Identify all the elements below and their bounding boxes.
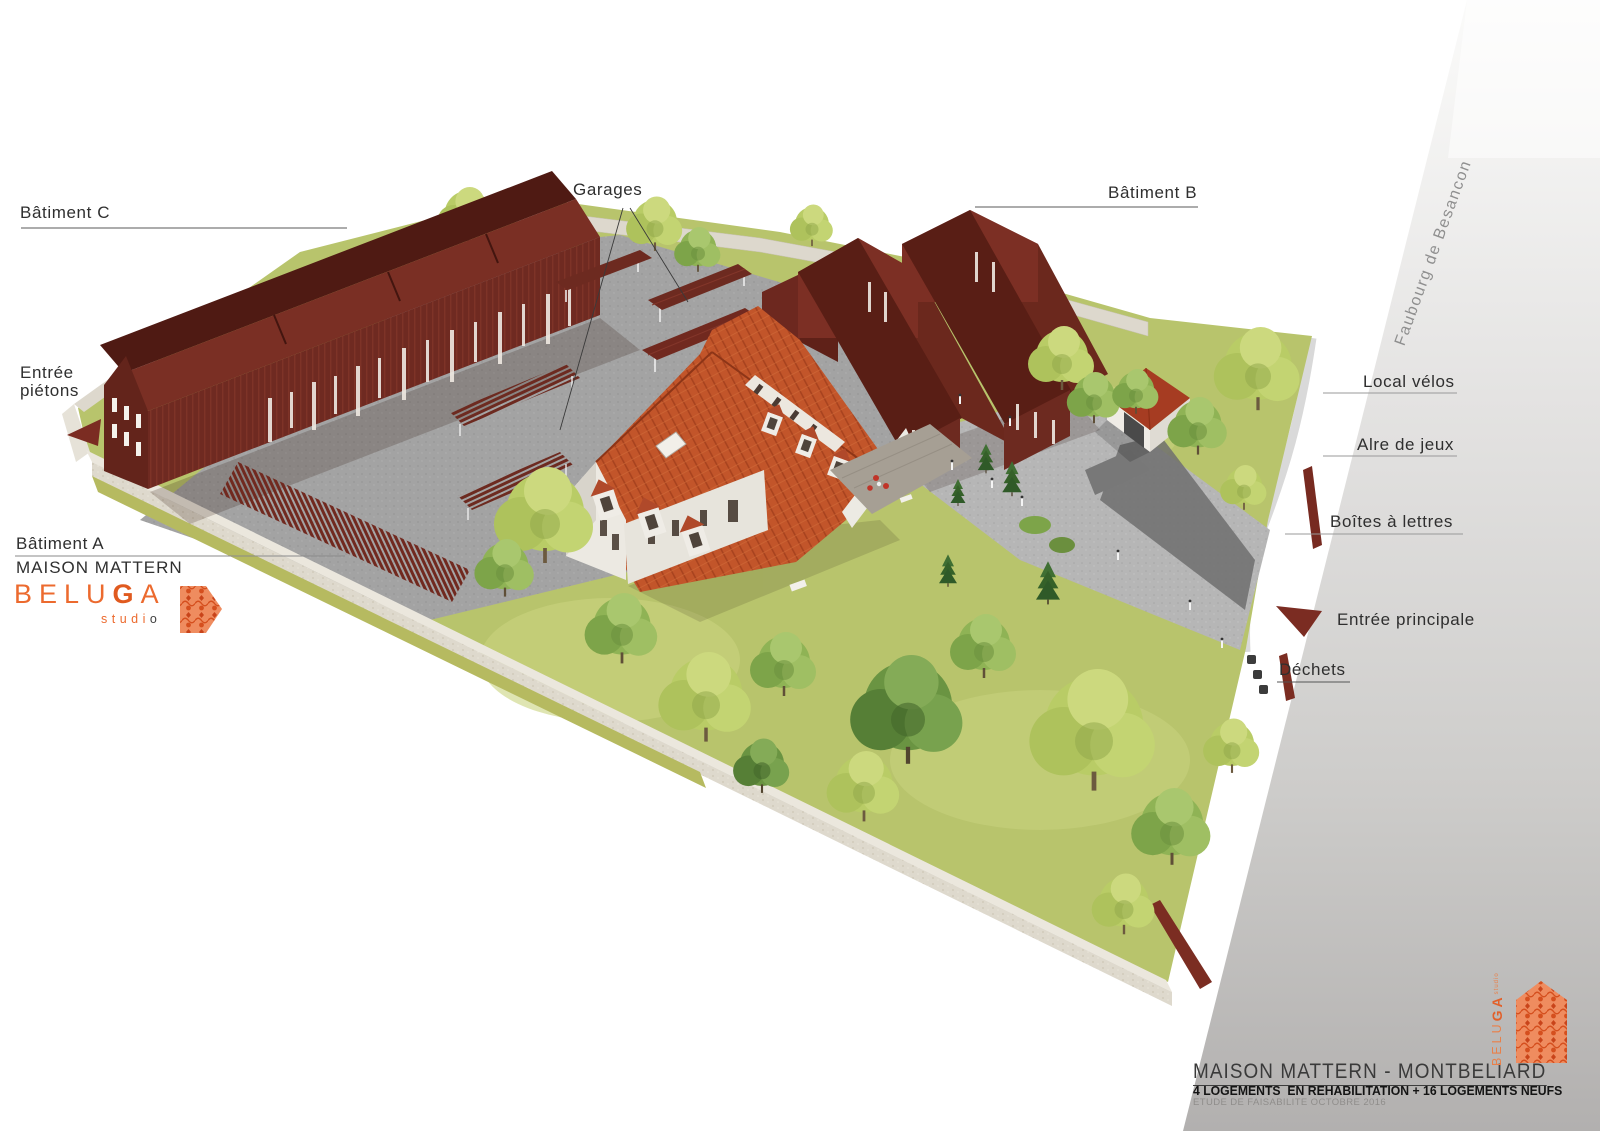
label-batiment-b: Bâtiment B — [1108, 183, 1197, 203]
label-maison-mattern: MAISON MATTERN — [16, 558, 183, 578]
presentation-sheet: Bâtiment C Garages Bâtiment B Entrée pié… — [0, 0, 1600, 1131]
label-aire-de-jeux: Alre de jeux — [1357, 435, 1454, 455]
label-boites-a-lettres: Boîtes à lettres — [1330, 512, 1453, 532]
beluga-last-letter: A — [141, 579, 166, 609]
label-entree-pietons: Entrée piétons — [20, 364, 92, 401]
label-garages: Garages — [573, 180, 642, 200]
sheet-subtitle: 4 LOGEMENTS EN REHABILITATION + 16 LOGEM… — [1193, 1083, 1562, 1098]
sheet-note: ETUDE DE FAISABILITE OCTOBRE 2016 — [1193, 1097, 1386, 1108]
label-batiment-c: Bâtiment C — [20, 203, 110, 223]
label-dechets: Déchets — [1279, 660, 1346, 680]
label-entree-principale: Entrée principale — [1337, 610, 1475, 630]
label-batiment-a: Bâtiment A — [16, 534, 104, 554]
beluga-logo-wordmark: BELUGA — [14, 579, 166, 610]
site-plan-rendering — [0, 0, 1600, 1131]
beluga-letters: BELU — [14, 579, 113, 609]
beluga-logo-studio: studio — [101, 612, 161, 626]
corner-logo-wordmark: BELUGAstudio — [1489, 978, 1505, 1066]
label-local-velos: Local vélos — [1363, 372, 1455, 392]
beluga-accent-letter: G — [113, 579, 141, 609]
